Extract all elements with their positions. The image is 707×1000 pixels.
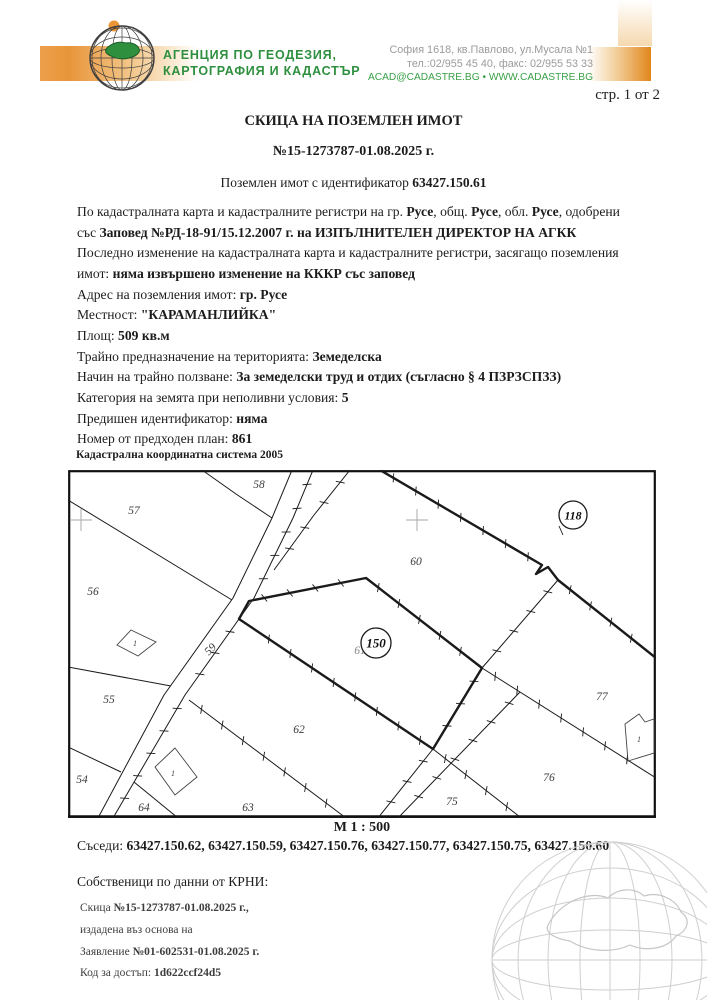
parcel-label: 59 (202, 641, 219, 658)
mark-near-118 (559, 526, 563, 535)
boundary-55-54 (68, 747, 121, 772)
detail-row: Категория на земята при неполивни услови… (77, 388, 620, 409)
coordinate-system-label: Кадастрална координатна система 2005 (76, 449, 283, 461)
parcel-identifier-line: Поземлен имот с идентификатор 63427.150.… (0, 175, 707, 191)
detail-row: Начин на трайно ползване: За земеделски … (77, 367, 620, 388)
boundary-60-east (482, 580, 558, 668)
agency-address: София 1618, кв.Павлово, ул.Мусала №1 (368, 44, 593, 58)
detail-row: По кадастралната карта и кадастралните р… (77, 202, 620, 223)
issue-row: Код за достъп: 1d622ccf24d5 (80, 963, 259, 985)
agency-name: АГЕНЦИЯ ПО ГЕОДЕЗИЯ, КАРТОГРАФИЯ И КАДАС… (163, 47, 360, 79)
boundary-76-77 (482, 668, 656, 778)
cadastral-map: 1115758565554646359626061777675150118 (68, 470, 656, 818)
detail-row: имот: няма извършено изменение на КККР с… (77, 264, 620, 285)
detail-row: Местност: "КАРАМАНЛИЙКА" (77, 305, 620, 326)
parcel-label: 75 (446, 796, 458, 808)
bulgaria-map-icon (106, 42, 140, 59)
watermark-bulgaria-outline (547, 890, 687, 951)
issue-row: издадена въз основа на (80, 920, 259, 942)
parcel-label: 63 (242, 802, 254, 814)
document-number: №15-1273787-01.08.2025 г. (0, 144, 707, 160)
detail-row: Последно изменение на кадастралната карт… (77, 243, 620, 264)
parcel-label: 77 (596, 691, 609, 703)
header-gradient-corner (618, 0, 652, 46)
building-label: 1 (637, 735, 641, 744)
parcel-label: 76 (543, 772, 555, 784)
issue-info-block: Скица №15-1273787-01.08.2025 г., издаден… (80, 898, 259, 985)
parcel-label: 55 (103, 694, 115, 706)
issue-row: Скица №15-1273787-01.08.2025 г., (80, 898, 259, 920)
detail-row: Адрес на поземления имот: гр. Русе (77, 285, 620, 306)
agency-globe-logo (86, 18, 160, 94)
watermark-globe (480, 830, 707, 1000)
boundary-63-75 (378, 749, 433, 818)
header-gradient-bar-right (588, 47, 651, 81)
boundary-63-62 (189, 700, 346, 818)
region-circle-label: 150 (366, 636, 386, 651)
agency-web-email: ACAD@CADASTRE.BG • WWW.CADASTRE.BG (368, 71, 593, 85)
agency-contact-block: София 1618, кв.Павлово, ул.Мусала №1 тел… (368, 44, 593, 85)
parcel-label: 57 (128, 505, 141, 517)
detail-row: Трайно предназначение на територията: Зе… (77, 347, 620, 368)
region-circle-label: 118 (564, 508, 581, 522)
boundary-75-76 (398, 692, 520, 818)
detail-row: Площ: 509 кв.м (77, 326, 620, 347)
parcel-label: 64 (138, 802, 150, 814)
boundary-56-55 (68, 667, 171, 686)
parcel-label: 58 (253, 479, 265, 491)
detail-row: Номер от предходен план: 861 (77, 429, 620, 450)
boundary-57-58 (202, 470, 272, 518)
property-details: По кадастралната карта и кадастралните р… (77, 202, 620, 450)
agency-phone: тел.:02/955 45 40, факс: 02/955 53 33 (368, 58, 593, 72)
document-title: СКИЦА НА ПОЗЕМЛЕН ИМОТ (0, 113, 707, 130)
building-outline (155, 748, 197, 795)
document-page: АГЕНЦИЯ ПО ГЕОДЕЗИЯ, КАРТОГРАФИЯ И КАДАС… (0, 0, 707, 1000)
building-label: 1 (133, 639, 137, 648)
boundary-57-56 (68, 500, 232, 600)
parcel-label: 62 (293, 724, 305, 736)
parcel-label: 56 (87, 586, 99, 598)
issue-row: Заявление №01-602531-01.08.2025 г. (80, 942, 259, 964)
owners-heading: Собственици по данни от КРНИ: (77, 874, 268, 890)
detail-row: Предишен идентификатор: няма (77, 409, 620, 430)
road-left-edge (98, 470, 292, 818)
building-label: 1 (171, 769, 175, 778)
parcel-label: 60 (410, 556, 422, 568)
parcel-label: 54 (76, 774, 88, 786)
agency-name-line2: КАРТОГРАФИЯ И КАДАСТЪР (163, 63, 360, 79)
agency-name-line1: АГЕНЦИЯ ПО ГЕОДЕЗИЯ, (163, 47, 360, 63)
page-number: стр. 1 от 2 (595, 87, 660, 104)
subject-parcel-outline (239, 578, 482, 749)
detail-row: със Заповед №РД-18-91/15.12.2007 г. на И… (77, 223, 620, 244)
